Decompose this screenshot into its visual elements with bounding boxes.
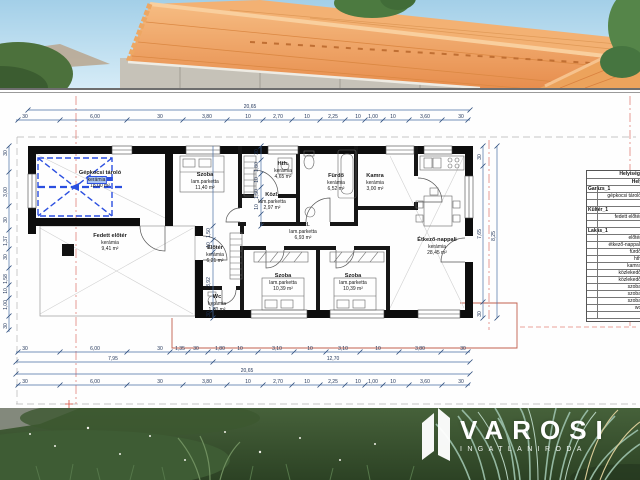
dim-label: 1,80: [254, 162, 260, 172]
dim-label: 1,37: [3, 236, 9, 246]
dim-label: 1,80: [215, 346, 225, 352]
dim-label: 6,00: [90, 379, 100, 385]
dim-label: 10: [375, 346, 381, 352]
schedule-row: [587, 200, 640, 207]
dim-label: 10: [245, 379, 251, 385]
dim-label: 2,70: [273, 379, 283, 385]
schedule-row: wc: [587, 305, 640, 312]
room-label-pantry: Kamrakerámia3,00 m²: [366, 173, 384, 193]
room-label-utility: Hth.kerámia4,65 m²: [274, 161, 292, 181]
dim-label: 10: [304, 114, 310, 120]
room-label-covered-porch: Fedett előtérkerámia9,41 m²: [93, 233, 127, 253]
dim-label: 7,95: [108, 356, 118, 362]
room-schedule-table: Helyiség kimutatás Helyiség Garázs_1 gép…: [586, 170, 640, 322]
roof-photo: [0, 0, 640, 88]
schedule-row: közlekedő: [587, 277, 640, 284]
dim-label: 1,50: [206, 228, 212, 238]
dim-label: 10: [390, 379, 396, 385]
dim-label: 2,70: [273, 114, 283, 120]
schedule-row: étkező-nappali: [587, 242, 640, 249]
dim-label: 30: [22, 379, 28, 385]
dim-label: 30: [477, 154, 483, 160]
dim-label: 10: [355, 379, 361, 385]
selected-text: kerámia: [88, 177, 106, 183]
schedule-row: közlekedő: [587, 270, 640, 277]
dim-label: 30: [254, 149, 260, 155]
schedule-row: előtér: [587, 235, 640, 242]
brand-tagline: INGATLANIRODA: [460, 446, 612, 453]
dim-label: 6,00: [90, 346, 100, 352]
dim-label: 30: [157, 114, 163, 120]
room-label-bedroom3: Szobalam.parketta10,39 m²: [339, 273, 367, 293]
dim-label: 2,25: [328, 114, 338, 120]
schedule-row: hth: [587, 256, 640, 263]
selection-handle: [106, 177, 112, 181]
dim-label: 30: [157, 379, 163, 385]
room-label-entry: Előtérkerámia6,21 m²: [206, 245, 224, 265]
dim-label: 10: [355, 114, 361, 120]
schedule-title: Helyiség kimutatás: [587, 171, 640, 179]
selection-arrow: [70, 183, 79, 191]
dim-label: 30: [193, 346, 199, 352]
roof-photo-art: [0, 0, 640, 88]
dim-label: 8,25: [491, 231, 497, 241]
dim-label: 30: [22, 346, 28, 352]
dim-label: 10: [3, 288, 9, 294]
dim-label: 1,35: [175, 346, 185, 352]
dim-label: 30: [477, 311, 483, 317]
dim-label: 30: [22, 114, 28, 120]
dim-label: 6,00: [90, 114, 100, 120]
schedule-row: [587, 312, 640, 319]
dim-label: 1,00: [3, 300, 9, 310]
dim-label: 1,00: [368, 114, 378, 120]
dim-label: 7,65: [477, 229, 483, 239]
schedule-row: Kültér_1: [587, 207, 640, 214]
dim-label: 2,25: [328, 379, 338, 385]
room-label-wc: Wckerámia1,60 m²: [208, 294, 226, 314]
dim-label: 30: [157, 346, 163, 352]
dim-label: 3,80: [415, 346, 425, 352]
kitchen-counter-icon: [420, 156, 464, 170]
schedule-row: fedett előtér: [587, 214, 640, 221]
schedule-row: szoba: [587, 284, 640, 291]
room-label-hall2: Közl.lam.parketta6,93 m²: [289, 222, 317, 242]
wardrobe-icon: [330, 252, 384, 262]
porch-column: [62, 244, 74, 256]
dim-label: 3,10: [272, 346, 282, 352]
dim-label: 30: [3, 254, 9, 260]
schedule-row: Lakás_1: [587, 228, 640, 235]
dim-label: 10: [254, 177, 260, 183]
dim-label: 10: [390, 114, 396, 120]
dim-label: 30: [3, 217, 9, 223]
schedule-row: [587, 221, 640, 228]
dim-label: 3,60: [420, 379, 430, 385]
dim-label: 10: [237, 346, 243, 352]
dim-label: 3,60: [420, 114, 430, 120]
dim-label: 1,58: [3, 274, 9, 284]
dim-label: 20,65: [244, 104, 257, 110]
dim-label: 10: [245, 114, 251, 120]
room-label-hall1: Közl.lam.parketta2,97 m²: [258, 192, 286, 212]
dim-label: 30: [3, 150, 9, 156]
dining-table-icon: [416, 188, 460, 226]
schedule-column-divider: [597, 186, 598, 319]
dim-label: 10: [304, 379, 310, 385]
dim-label: 3,80: [202, 114, 212, 120]
varosi-logo-icon: [421, 407, 451, 461]
brand-logo: VAROSI INGATLANIRODA: [421, 407, 612, 461]
dim-label: 30: [458, 379, 464, 385]
schedule-row: gépkocsi tároló: [587, 193, 640, 200]
schedule-row: kamra: [587, 263, 640, 270]
room-label-bedroom1: Szobalam.parketta11,40 m²: [191, 172, 219, 192]
room-label-living-dining: Étkező-nappalikerámia28,45 m²: [417, 237, 456, 257]
dim-label: 30: [458, 114, 464, 120]
room-label-bedroom2: Szobalam.parketta10,39 m²: [269, 273, 297, 293]
schedule-column-header: Helyiség: [587, 179, 640, 186]
schedule-row: szoba: [587, 298, 640, 305]
schedule-row: fürdő: [587, 249, 640, 256]
dim-label: 1,00: [368, 379, 378, 385]
dim-label: 3,92: [206, 277, 212, 287]
floorplan-sheet: Gépkocsi tároló kerámia 18,00 m² Fedett …: [0, 0, 640, 480]
dim-label: 20,65: [241, 368, 254, 374]
dim-label: 3,00: [3, 187, 9, 197]
dim-label: 30: [460, 346, 466, 352]
brand-name: VAROSI: [460, 416, 612, 444]
schedule-row: Garázs_1: [587, 186, 640, 193]
room-label-bathroom: Fürdőkerámia6,52 m²: [327, 173, 345, 193]
dim-label: 3,10: [338, 346, 348, 352]
dim-label: 12,70: [327, 356, 340, 362]
schedule-row: szoba: [587, 291, 640, 298]
dim-label: 3,80: [202, 379, 212, 385]
dim-label: 30: [3, 323, 9, 329]
dim-label: 10: [307, 346, 313, 352]
room-label-garage: Gépkocsi tároló kerámia 18,00 m²: [79, 170, 121, 190]
